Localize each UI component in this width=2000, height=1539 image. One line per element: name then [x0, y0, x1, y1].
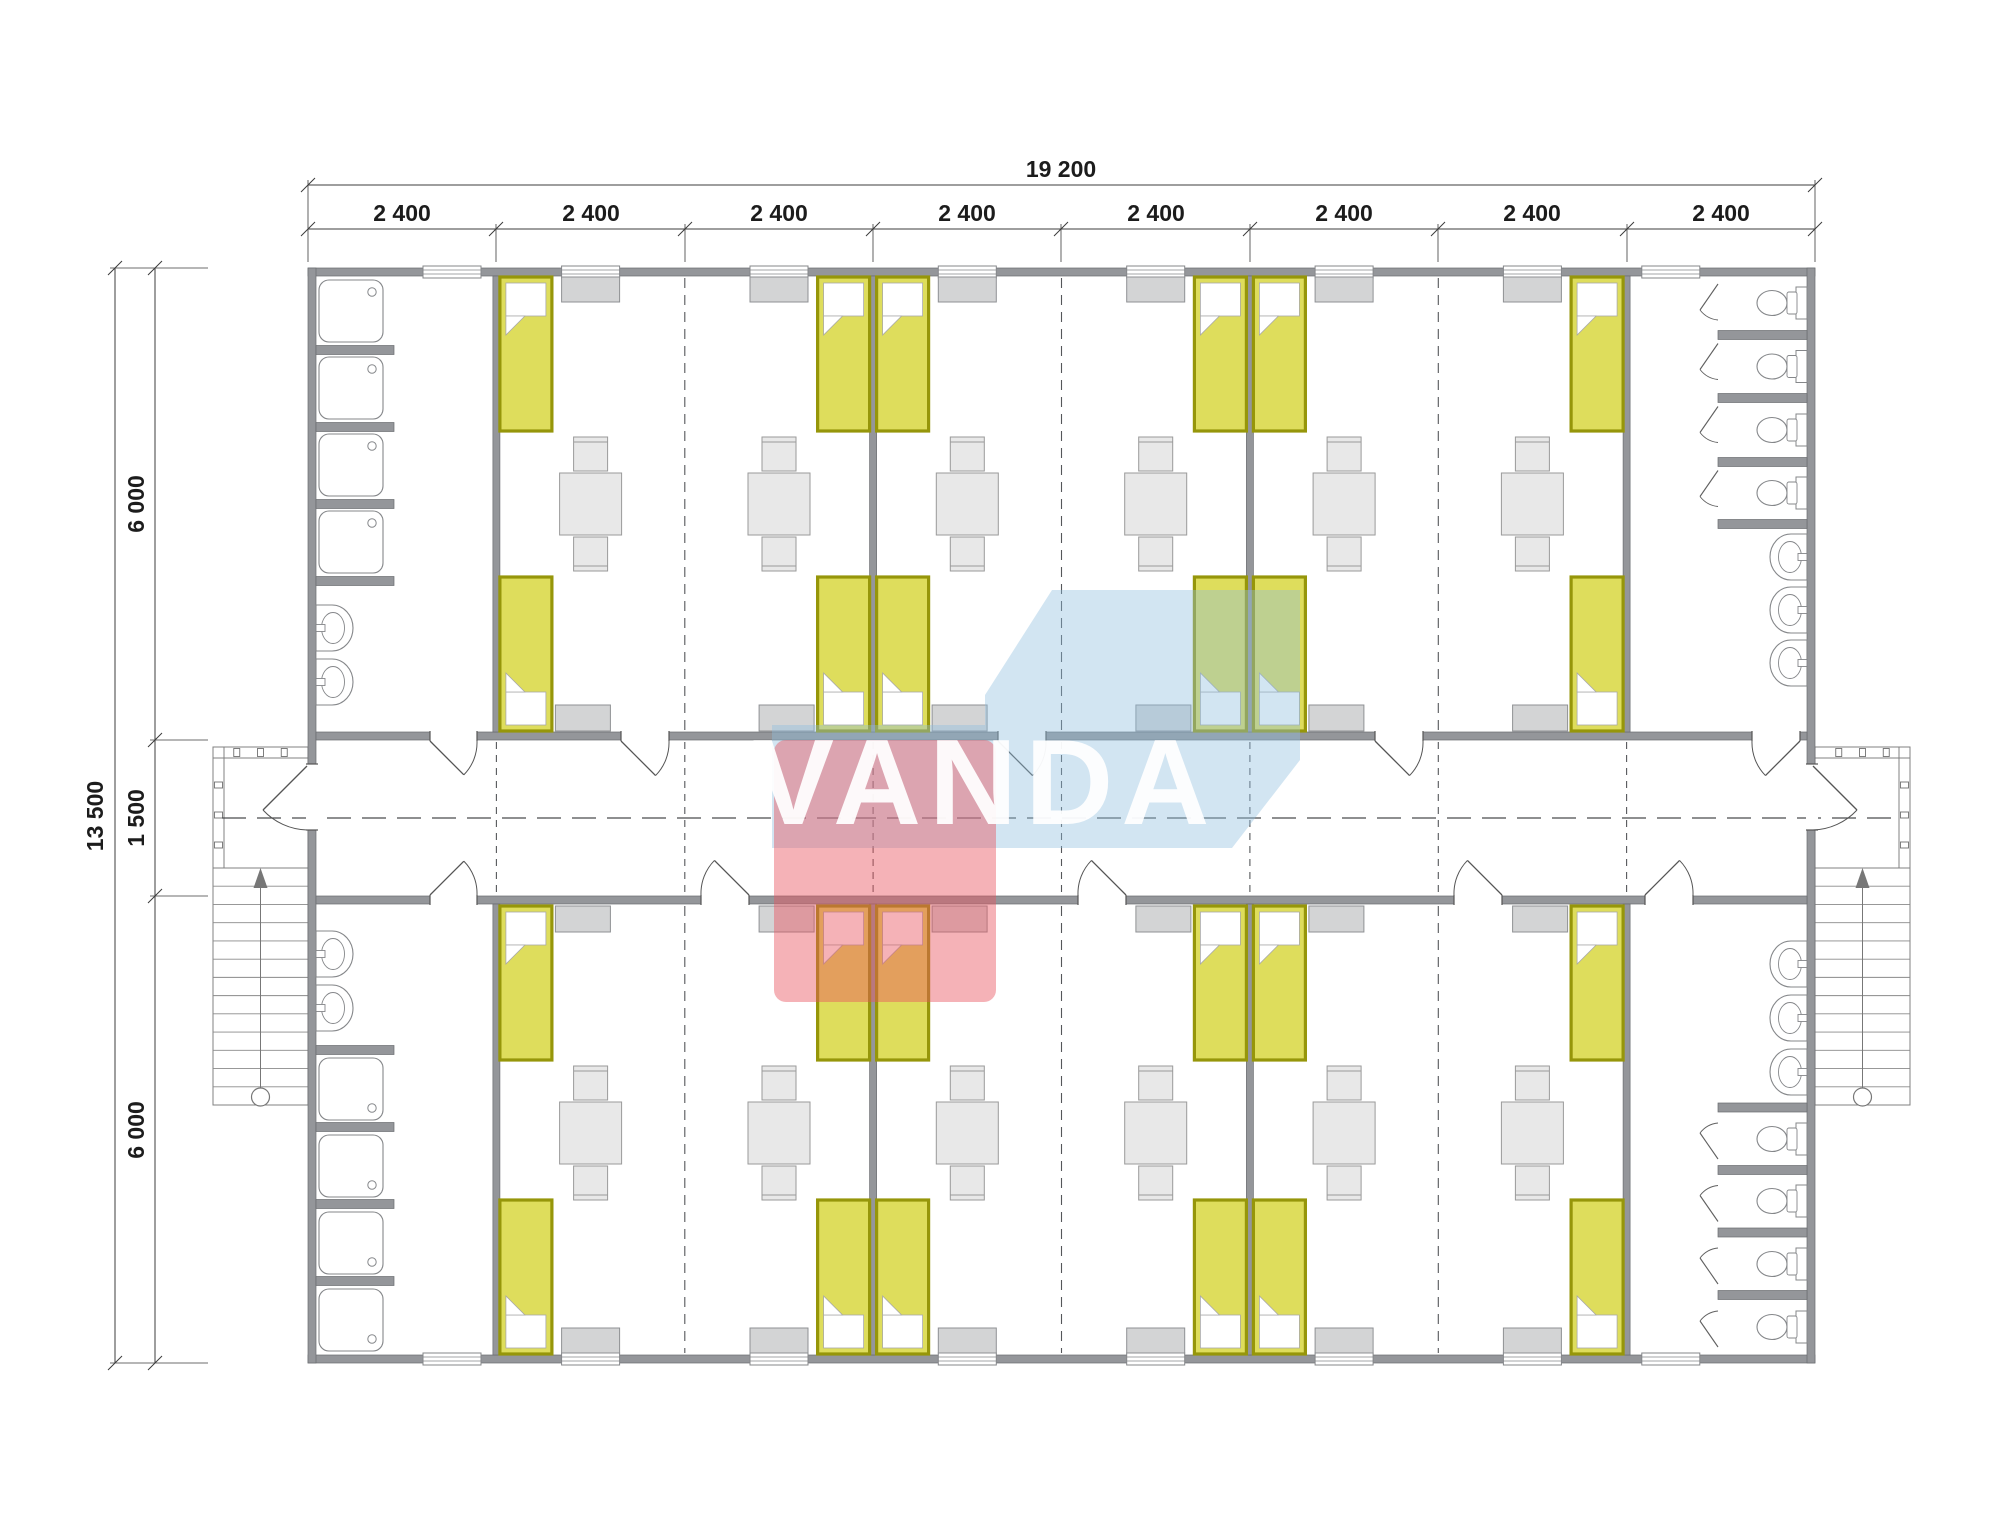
wardrobe — [1136, 906, 1191, 932]
sink-tap — [1798, 1069, 1807, 1076]
toilet-tank — [1796, 351, 1807, 383]
porch-platform — [1815, 747, 1910, 868]
porch-rail-post — [215, 842, 223, 848]
stall-door-arc — [1700, 1311, 1718, 1321]
toilet-seat-hinge — [1787, 1190, 1797, 1212]
window — [1642, 266, 1700, 278]
shower-stub-wall — [316, 423, 394, 432]
toilet-stall-wall — [1718, 1103, 1807, 1112]
toilet-stall-wall — [1718, 458, 1807, 467]
dim-top-overall-label: 19 200 — [1026, 156, 1096, 182]
window — [562, 1353, 620, 1365]
window — [1503, 1353, 1561, 1365]
exterior-wall-bottom — [308, 1355, 1815, 1363]
door-swing-arc — [1752, 741, 1765, 776]
shower-drain — [368, 1104, 376, 1112]
toilet-bowl — [1757, 481, 1787, 506]
shower-drain — [368, 288, 376, 296]
table — [1501, 473, 1563, 535]
porch-rail-post — [1901, 842, 1909, 848]
dim-top-segment-label: 2 400 — [1503, 200, 1561, 226]
window — [1127, 266, 1185, 278]
shower-drain — [368, 1335, 376, 1343]
door-swing-arc — [1680, 860, 1693, 895]
sink-tap — [316, 1005, 325, 1012]
window — [1642, 1353, 1700, 1365]
bed-pillow — [506, 1315, 546, 1348]
bed-pillow — [1577, 283, 1617, 316]
door-leaf — [1467, 860, 1502, 895]
cabinet-under-window — [1315, 1328, 1373, 1353]
door-opening — [621, 731, 669, 741]
toilet-seat-hinge — [1787, 482, 1797, 504]
shower-stub-wall — [316, 1046, 394, 1055]
stall-door-arc — [1700, 1248, 1718, 1258]
shower-stub-wall — [316, 500, 394, 509]
stall-door-arc — [1700, 370, 1718, 380]
porch-rail-post — [1860, 749, 1866, 757]
toilet-stall-wall — [1718, 1228, 1807, 1237]
porch-right — [1815, 747, 1910, 868]
bed-pillow — [1577, 692, 1617, 725]
door-opening — [430, 731, 477, 741]
porch-rail-post — [1883, 749, 1889, 757]
door-opening — [1078, 895, 1126, 905]
stairs — [1815, 868, 1910, 1106]
sink-tap — [316, 679, 325, 686]
porch-rail-post — [215, 782, 223, 788]
dim-top-segment-label: 2 400 — [373, 200, 431, 226]
toilet-tank — [1796, 1248, 1807, 1280]
dim-top-segment-label: 2 400 — [1127, 200, 1185, 226]
wardrobe — [1309, 705, 1364, 731]
toilet-bowl — [1757, 1189, 1787, 1214]
wardrobe — [555, 705, 610, 731]
stall-door-leaf — [1700, 407, 1718, 433]
toilet-tank — [1796, 477, 1807, 509]
door-leaf — [1091, 860, 1126, 895]
door-leaf — [1375, 741, 1410, 776]
bed-pillow — [1577, 912, 1617, 945]
wardrobe — [555, 906, 610, 932]
wardrobe — [1309, 906, 1364, 932]
toilet-bowl — [1757, 354, 1787, 379]
porch-rail-post — [281, 749, 287, 757]
shower-stub-wall — [316, 1200, 394, 1209]
door-leaf — [1765, 741, 1800, 776]
shower-stub-wall — [316, 577, 394, 586]
door-swing-arc — [1078, 860, 1091, 895]
door-leaf — [1645, 860, 1680, 895]
stall-door-leaf — [1700, 1133, 1718, 1159]
door-opening — [306, 764, 318, 830]
stall-door-leaf — [1700, 1258, 1718, 1284]
door-leaf — [714, 860, 749, 895]
toilet-tank — [1796, 414, 1807, 446]
toilet-stall-wall — [1718, 394, 1807, 403]
toilet-tank — [1796, 1185, 1807, 1217]
door-swing-arc — [464, 741, 477, 775]
door-opening — [1375, 731, 1423, 741]
sink-tap — [316, 951, 325, 958]
toilet-stall-wall — [1718, 331, 1807, 340]
toilet-bowl — [1757, 418, 1787, 443]
cabinet-under-window — [562, 1328, 620, 1353]
door-swing-arc — [1410, 741, 1423, 776]
porch-rail-post — [234, 749, 240, 757]
toilet-bowl — [1757, 1315, 1787, 1340]
floor-plan: 19 200 2 400 2 400 2 400 2 400 2 400 2 4… — [0, 0, 2000, 1539]
table — [1313, 473, 1375, 535]
sink-tap — [1798, 961, 1807, 968]
stairs-start-marker — [1854, 1088, 1872, 1106]
shower-drain — [368, 1258, 376, 1266]
shower-stub-wall — [316, 1123, 394, 1132]
toilet-stall-wall — [1718, 1166, 1807, 1175]
window — [562, 266, 620, 278]
toilet-seat-hinge — [1787, 1128, 1797, 1150]
window — [1127, 1353, 1185, 1365]
bed-pillow — [824, 1315, 864, 1348]
door-swing-arc — [1454, 860, 1467, 895]
sink-tap — [316, 625, 325, 632]
door-leaf — [430, 861, 464, 895]
toilet-bowl — [1757, 1252, 1787, 1277]
door-opening — [430, 895, 477, 905]
stall-door-arc — [1700, 1186, 1718, 1196]
exterior-wall-top — [308, 268, 1815, 276]
toilet-tank — [1796, 287, 1807, 319]
door-swing-arc — [656, 741, 669, 776]
window — [1315, 1353, 1373, 1365]
wardrobe — [1513, 906, 1568, 932]
shower-stub-wall — [316, 346, 394, 355]
table — [1125, 473, 1187, 535]
dim-top-segment-label: 2 400 — [1315, 200, 1373, 226]
bed-pillow — [824, 283, 864, 316]
dim-left-segment-label: 6 000 — [123, 1101, 149, 1159]
cabinet-under-window — [1503, 1328, 1561, 1353]
dim-top-segment-label: 2 400 — [750, 200, 808, 226]
cabinet-under-window — [1127, 277, 1185, 302]
sink-tap — [1798, 607, 1807, 614]
door-opening — [1806, 764, 1818, 830]
bed-pillow — [506, 692, 546, 725]
window — [423, 266, 481, 278]
bed-pillow — [883, 283, 923, 316]
stall-door-leaf — [1700, 1196, 1718, 1222]
table — [1501, 1102, 1563, 1164]
shower-drain — [368, 442, 376, 450]
porch-rail-post — [215, 812, 223, 818]
cabinet-under-window — [938, 1328, 996, 1353]
toilet-seat-hinge — [1787, 292, 1797, 314]
bed-pillow — [883, 1315, 923, 1348]
toilet-tank — [1796, 1123, 1807, 1155]
door-swing-arc — [464, 861, 477, 895]
dim-top-segment-label: 2 400 — [938, 200, 996, 226]
stall-door-arc — [1700, 433, 1718, 443]
toilet-tank — [1796, 1311, 1807, 1343]
door-leaf — [430, 741, 464, 775]
porch-rail-post — [1901, 782, 1909, 788]
dim-left-segment-label: 1 500 — [123, 789, 149, 847]
table — [748, 1102, 810, 1164]
table — [560, 1102, 622, 1164]
table — [936, 473, 998, 535]
dim-left-overall-label: 13 500 — [82, 781, 108, 851]
bed-pillow — [1259, 912, 1299, 945]
bed-pillow — [1259, 283, 1299, 316]
bed-pillow — [506, 283, 546, 316]
porch-rail-post — [1901, 812, 1909, 818]
window — [938, 1353, 996, 1365]
door-opening — [701, 895, 749, 905]
shower-drain — [368, 365, 376, 373]
table — [560, 473, 622, 535]
stall-door-arc — [1700, 1123, 1718, 1133]
sink-tap — [1798, 660, 1807, 667]
door-opening — [1454, 895, 1502, 905]
stall-door-leaf — [1700, 471, 1718, 497]
stairs — [213, 868, 308, 1106]
toilet-seat-hinge — [1787, 1316, 1797, 1338]
bed-pillow — [1259, 1315, 1299, 1348]
dim-top-segment-label: 2 400 — [1692, 200, 1750, 226]
stall-door-leaf — [1700, 284, 1718, 310]
shower-drain — [368, 519, 376, 527]
dim-top-segment-label: 2 400 — [562, 200, 620, 226]
toilet-bowl — [1757, 1127, 1787, 1152]
bed-pillow — [506, 912, 546, 945]
corridor-wall-bottom — [316, 896, 1807, 904]
toilet-seat-hinge — [1787, 356, 1797, 378]
window — [423, 1353, 481, 1365]
wardrobe — [1513, 705, 1568, 731]
toilet-seat-hinge — [1787, 1253, 1797, 1275]
toilet-stall-wall — [1718, 1291, 1807, 1300]
porch-left — [213, 747, 308, 868]
window — [750, 1353, 808, 1365]
stall-door-arc — [1700, 497, 1718, 507]
bed-pillow — [1200, 912, 1240, 945]
door-swing-arc — [701, 860, 714, 895]
toilet-seat-hinge — [1787, 419, 1797, 441]
window — [938, 266, 996, 278]
shower-drain — [368, 1181, 376, 1189]
watermark-text: VANDA — [753, 714, 1218, 850]
cabinet-under-window — [750, 1328, 808, 1353]
cabinet-under-window — [750, 277, 808, 302]
cabinet-under-window — [1503, 277, 1561, 302]
dim-top-extension-lines — [308, 180, 1815, 262]
sink-tap — [1798, 1015, 1807, 1022]
cabinet-under-window — [938, 277, 996, 302]
table — [936, 1102, 998, 1164]
bed-pillow — [1200, 283, 1240, 316]
porch-rail-post — [1836, 749, 1842, 757]
table — [1313, 1102, 1375, 1164]
door-leaf — [621, 741, 656, 776]
bed-pillow — [1577, 1315, 1617, 1348]
dim-left-segment-label: 6 000 — [123, 475, 149, 533]
door-opening — [1752, 731, 1800, 741]
table — [1125, 1102, 1187, 1164]
door-opening — [1645, 895, 1693, 905]
window — [750, 266, 808, 278]
bed-pillow — [1200, 1315, 1240, 1348]
toilet-stall-wall — [1718, 520, 1807, 529]
stall-door-leaf — [1700, 1321, 1718, 1347]
toilet-bowl — [1757, 291, 1787, 316]
cabinet-under-window — [1127, 1328, 1185, 1353]
cabinet-under-window — [1315, 277, 1373, 302]
porch-rail-post — [258, 749, 264, 757]
stairs-start-marker — [252, 1088, 270, 1106]
porch-platform — [213, 747, 308, 868]
sink-tap — [1798, 554, 1807, 561]
shower-stub-wall — [316, 1277, 394, 1286]
stall-door-leaf — [1700, 344, 1718, 370]
window — [1315, 266, 1373, 278]
window — [1503, 266, 1561, 278]
table — [748, 473, 810, 535]
stall-door-arc — [1700, 310, 1718, 320]
cabinet-under-window — [562, 277, 620, 302]
